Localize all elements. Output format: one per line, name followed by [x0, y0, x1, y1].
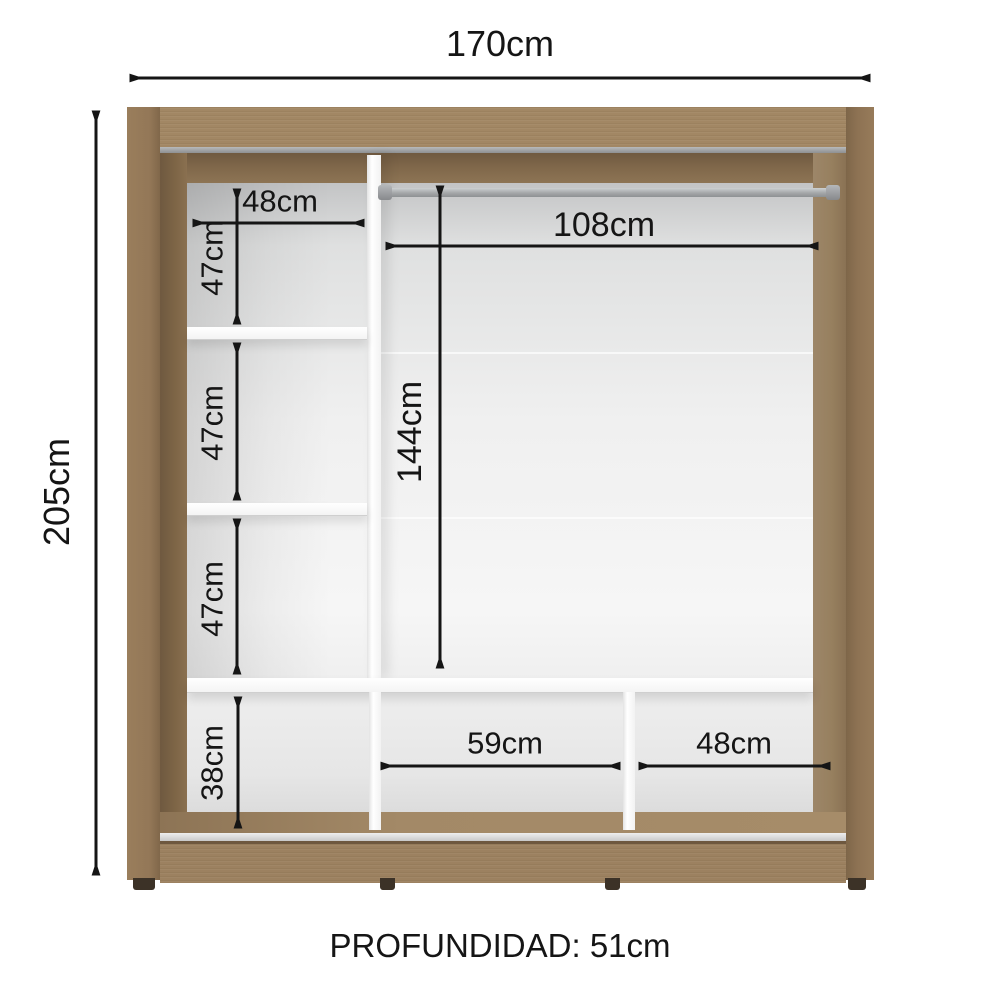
wardrobe-foot [380, 878, 395, 890]
label-section-47-1: 47cm [197, 220, 228, 296]
label-overall-width: 170cm [446, 26, 554, 62]
label-section-38: 38cm [197, 725, 228, 801]
wardrobe-floor [160, 812, 846, 833]
wardrobe-foot [848, 878, 866, 890]
right-inner-bevel [813, 153, 846, 813]
wardrobe-base-panel [160, 841, 846, 883]
wardrobe-left-side-panel [127, 107, 160, 880]
hanging-rod [386, 188, 834, 197]
label-overall-height: 205cm [39, 438, 75, 546]
label-left-column-width: 48cm [242, 186, 318, 217]
label-bottom-middle-width: 59cm [467, 728, 543, 759]
label-main-height: 144cm [393, 381, 427, 483]
top-inner-bevel [160, 153, 846, 183]
bottom-divider-right [623, 692, 635, 830]
wardrobe-floor-front-edge [160, 833, 846, 841]
left-column-shelf-1 [187, 327, 367, 340]
label-rod-width: 108cm [553, 208, 655, 242]
hanging-rod-right-cap [826, 185, 840, 200]
wardrobe-dimension-diagram: 170cm 205cm 48cm 47cm 47cm 47cm 38cm 108… [0, 0, 1000, 1000]
wardrobe-top-panel [127, 107, 874, 149]
hanging-rod-left-cap [378, 185, 392, 200]
label-bottom-right-width: 48cm [696, 728, 772, 759]
depth-label: PROFUNDIDAD: 51cm [329, 927, 670, 965]
back-panel-seam [381, 352, 813, 354]
wardrobe-foot [605, 878, 620, 890]
center-vertical-divider [367, 155, 381, 678]
left-inner-bevel [160, 153, 187, 813]
back-panel-seam [381, 517, 813, 519]
full-width-shelf [187, 678, 813, 693]
left-column-shelf-2 [187, 503, 367, 516]
wardrobe-foot [133, 878, 155, 890]
label-section-47-2: 47cm [197, 385, 228, 461]
bottom-divider-left [369, 692, 381, 830]
label-section-47-3: 47cm [197, 561, 228, 637]
wardrobe-right-side-panel [846, 107, 874, 880]
